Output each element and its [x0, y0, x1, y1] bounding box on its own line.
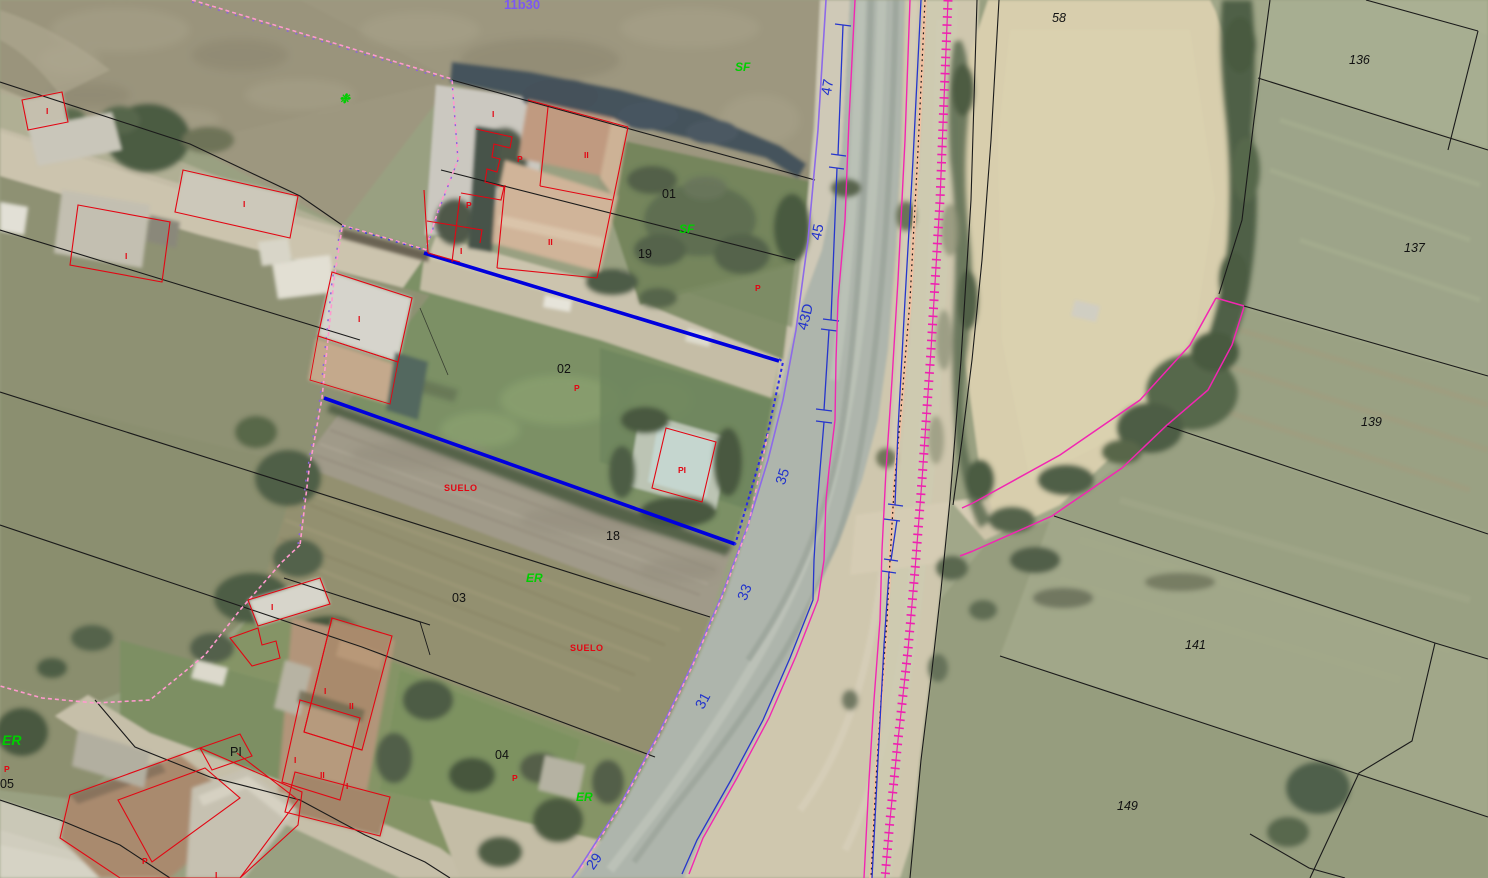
svg-text:I: I: [215, 870, 217, 878]
svg-text:II: II: [349, 701, 354, 711]
svg-text:I: I: [492, 109, 494, 119]
svg-text:P: P: [517, 154, 523, 164]
svg-text:I: I: [294, 755, 296, 765]
svg-text:141: 141: [1185, 638, 1206, 652]
svg-text:03: 03: [452, 591, 466, 605]
svg-text:P: P: [574, 383, 580, 393]
svg-text:47: 47: [819, 78, 838, 97]
svg-text:P: P: [466, 200, 472, 210]
svg-text:18: 18: [606, 529, 620, 543]
svg-text:I: I: [271, 602, 273, 612]
svg-text:58: 58: [1052, 11, 1066, 25]
svg-text:P: P: [512, 773, 518, 783]
svg-text:SUELO: SUELO: [570, 643, 604, 653]
svg-text:❉: ❉: [339, 91, 351, 106]
svg-text:II: II: [548, 237, 553, 247]
svg-text:ER: ER: [526, 571, 543, 585]
svg-text:SF: SF: [735, 60, 751, 74]
svg-text:PI: PI: [230, 745, 242, 759]
svg-text:02: 02: [557, 362, 571, 376]
svg-text:45: 45: [809, 223, 828, 242]
svg-text:11b30: 11b30: [504, 0, 540, 12]
svg-text:I: I: [243, 199, 245, 209]
svg-text:I: I: [46, 106, 48, 116]
svg-text:139: 139: [1361, 415, 1382, 429]
svg-text:I: I: [346, 781, 348, 791]
svg-text:04: 04: [495, 748, 509, 762]
svg-text:I: I: [460, 246, 462, 256]
svg-text:ER: ER: [2, 732, 22, 748]
svg-text:I: I: [324, 686, 326, 696]
svg-text:19: 19: [638, 247, 652, 261]
svg-text:ER: ER: [576, 790, 593, 804]
svg-text:P: P: [755, 283, 761, 293]
svg-text:SF: SF: [679, 222, 695, 236]
svg-text:SUELO: SUELO: [444, 483, 478, 493]
svg-text:I: I: [358, 314, 360, 324]
svg-text:P: P: [4, 764, 10, 774]
svg-text:I: I: [125, 251, 127, 261]
svg-text:PI: PI: [678, 465, 686, 475]
svg-text:149: 149: [1117, 799, 1138, 813]
svg-text:P: P: [142, 856, 148, 866]
svg-text:136: 136: [1349, 53, 1370, 67]
svg-text:II: II: [584, 150, 589, 160]
svg-text:II: II: [320, 770, 325, 780]
svg-text:01: 01: [662, 187, 676, 201]
svg-text:137: 137: [1404, 241, 1426, 255]
svg-text:05: 05: [0, 777, 14, 791]
